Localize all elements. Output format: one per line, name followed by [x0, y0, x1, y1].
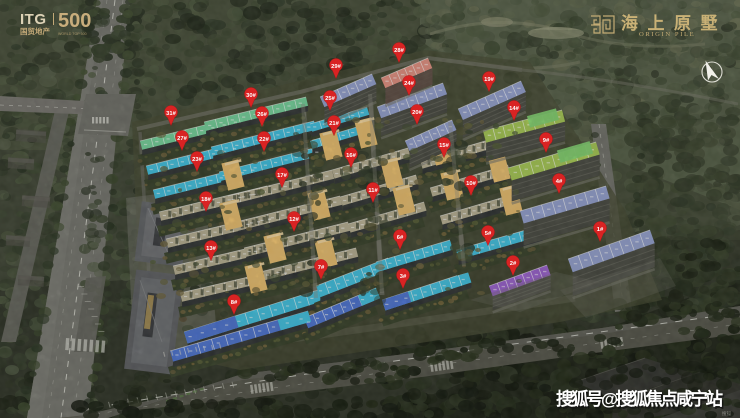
svg-text:10#: 10#	[466, 181, 476, 187]
svg-text:WORLD TOP 500: WORLD TOP 500	[58, 32, 87, 36]
svg-text:30#: 30#	[246, 93, 256, 99]
svg-text:31#: 31#	[166, 111, 176, 117]
svg-text:墅: 墅	[701, 14, 718, 33]
svg-text:6#: 6#	[397, 235, 404, 241]
svg-text:24#: 24#	[404, 81, 414, 87]
svg-text:18#: 18#	[201, 197, 211, 203]
svg-text:国贸地产: 国贸地产	[20, 26, 50, 36]
svg-text:5#: 5#	[485, 231, 492, 237]
svg-text:4#: 4#	[556, 179, 563, 185]
svg-text:14#: 14#	[509, 106, 519, 112]
svg-text:8#: 8#	[231, 300, 238, 306]
svg-text:20#: 20#	[412, 110, 422, 116]
svg-text:ORIGIN PILE: ORIGIN PILE	[639, 31, 695, 38]
svg-text:ITG: ITG	[20, 11, 47, 28]
svg-text:2#: 2#	[510, 261, 517, 267]
svg-text:搜狐号@搜狐焦点咸宁站: 搜狐号@搜狐焦点咸宁站	[556, 389, 724, 409]
svg-text:21#: 21#	[329, 121, 339, 127]
svg-text:1#: 1#	[597, 227, 604, 233]
svg-text:15#: 15#	[439, 143, 449, 149]
svg-text:27#: 27#	[177, 136, 187, 142]
svg-text:搜狐: 搜狐	[722, 410, 731, 417]
svg-text:16#: 16#	[346, 153, 356, 159]
svg-text:500: 500	[58, 10, 91, 32]
svg-text:11#: 11#	[368, 188, 378, 194]
svg-text:23#: 23#	[192, 157, 202, 163]
svg-text:3#: 3#	[400, 274, 407, 280]
svg-text:13#: 13#	[206, 246, 216, 252]
svg-text:29#: 29#	[331, 64, 341, 70]
svg-text:7#: 7#	[318, 265, 325, 271]
svg-text:19#: 19#	[484, 77, 494, 83]
svg-text:28#: 28#	[394, 48, 404, 54]
svg-text:9#: 9#	[543, 138, 550, 144]
svg-text:25#: 25#	[325, 96, 335, 102]
svg-text:22#: 22#	[259, 137, 269, 143]
svg-text:海: 海	[621, 13, 638, 33]
svg-text:12#: 12#	[289, 217, 299, 223]
svg-text:17#: 17#	[277, 173, 287, 179]
svg-text:26#: 26#	[257, 112, 267, 118]
